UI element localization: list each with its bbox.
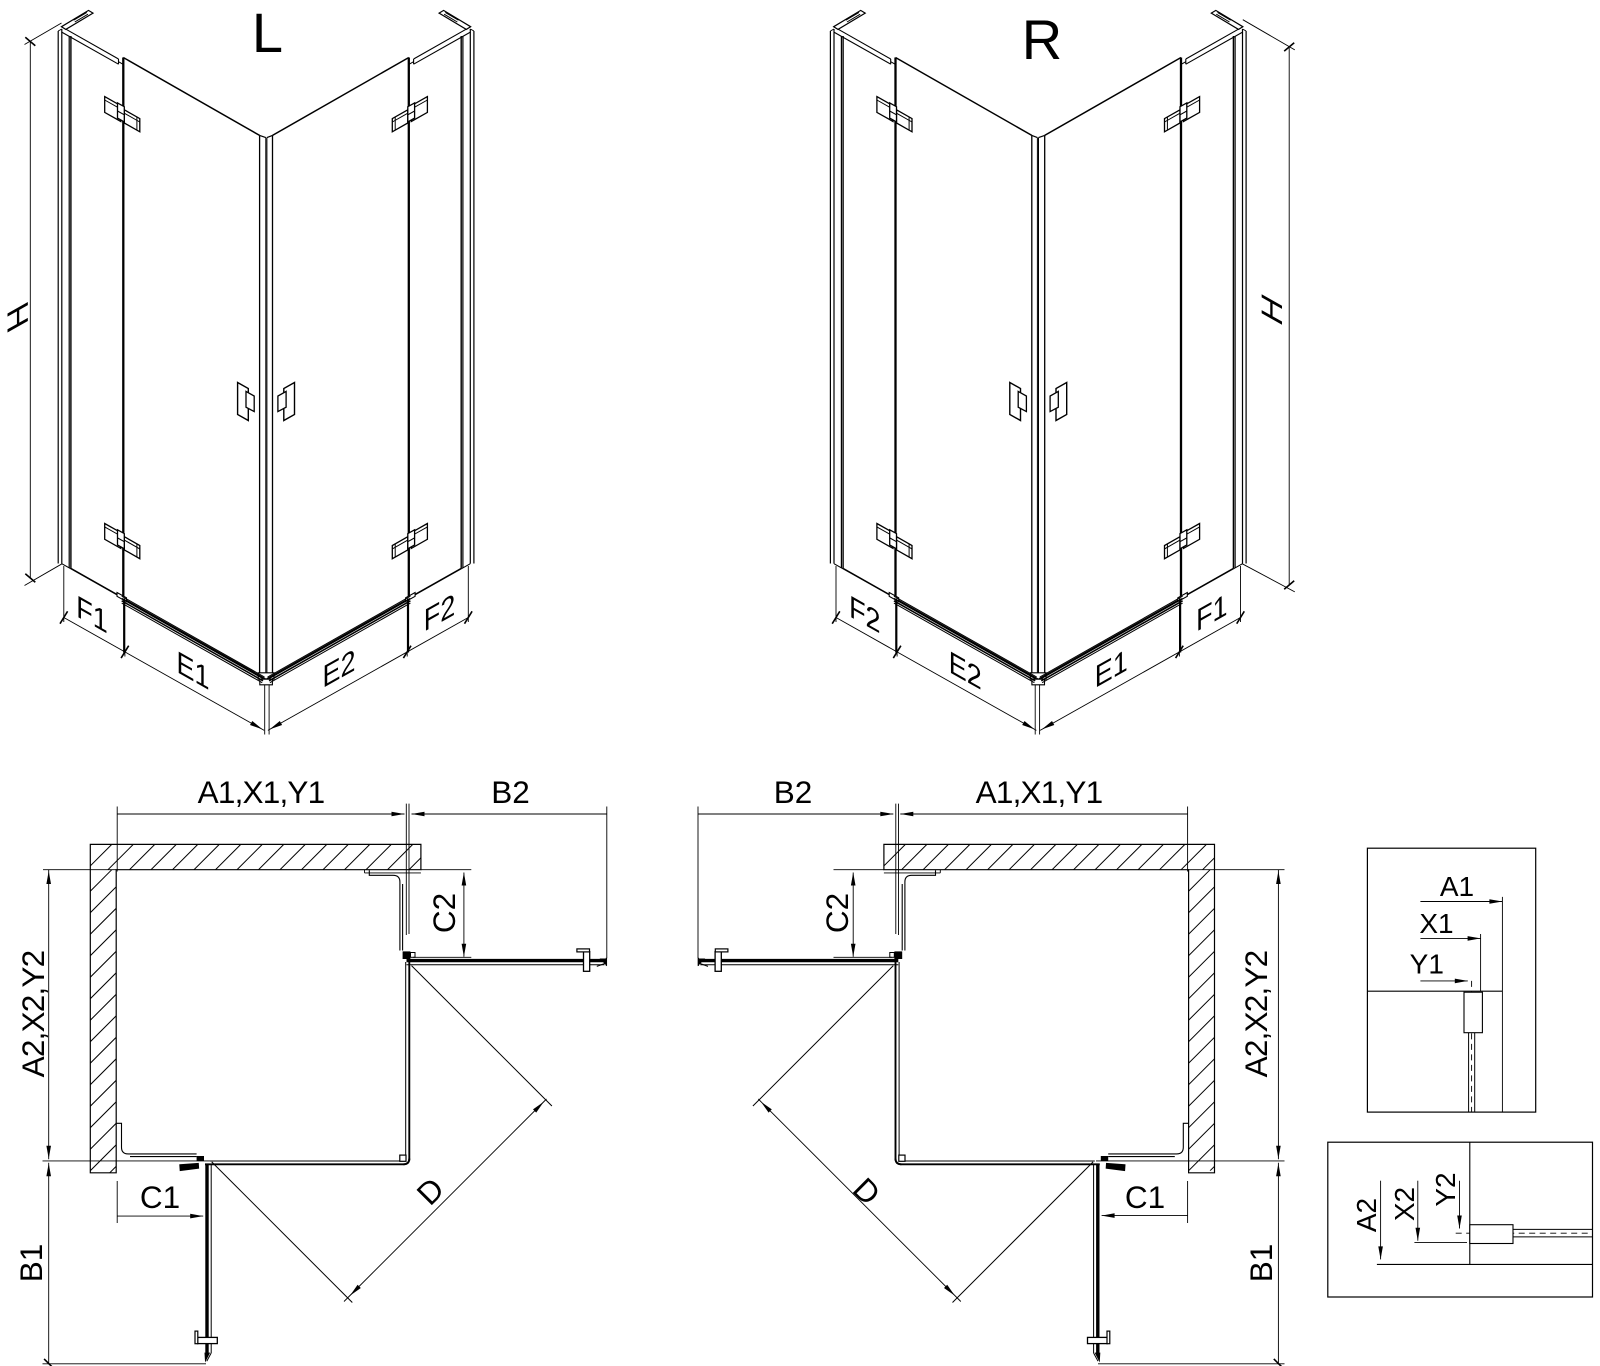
svg-text:A1: A1 — [1440, 871, 1474, 902]
svg-text:C1: C1 — [1125, 1179, 1165, 1215]
svg-text:H: H — [1256, 288, 1289, 331]
svg-text:A2: A2 — [1351, 1198, 1382, 1232]
svg-text:L: L — [252, 1, 283, 64]
svg-text:A2,X2,Y2: A2,X2,Y2 — [15, 951, 51, 1078]
svg-text:Y2: Y2 — [1430, 1172, 1461, 1206]
svg-text:D: D — [409, 1170, 451, 1212]
svg-text:E1: E1 — [177, 644, 210, 698]
svg-text:B1: B1 — [13, 1244, 49, 1283]
svg-text:F2: F2 — [424, 586, 455, 639]
svg-text:C2: C2 — [426, 893, 462, 933]
svg-text:A2,X2,Y2: A2,X2,Y2 — [1238, 951, 1274, 1078]
svg-text:Y1: Y1 — [1410, 949, 1444, 980]
svg-text:F1: F1 — [1196, 586, 1227, 639]
svg-text:F2: F2 — [849, 588, 880, 641]
svg-text:A1,X1,Y1: A1,X1,Y1 — [976, 774, 1103, 810]
svg-text:H: H — [1, 296, 34, 339]
svg-text:D: D — [846, 1170, 888, 1212]
svg-text:C1: C1 — [140, 1179, 180, 1215]
svg-text:B2: B2 — [774, 774, 813, 810]
svg-text:B2: B2 — [491, 774, 530, 810]
svg-text:X2: X2 — [1389, 1187, 1420, 1221]
svg-text:C2: C2 — [819, 893, 855, 933]
svg-text:R: R — [1022, 8, 1062, 71]
svg-text:E2: E2 — [949, 644, 982, 698]
svg-text:A1,X1,Y1: A1,X1,Y1 — [198, 774, 325, 810]
svg-text:X1: X1 — [1419, 908, 1453, 939]
svg-text:B1: B1 — [1243, 1244, 1279, 1283]
